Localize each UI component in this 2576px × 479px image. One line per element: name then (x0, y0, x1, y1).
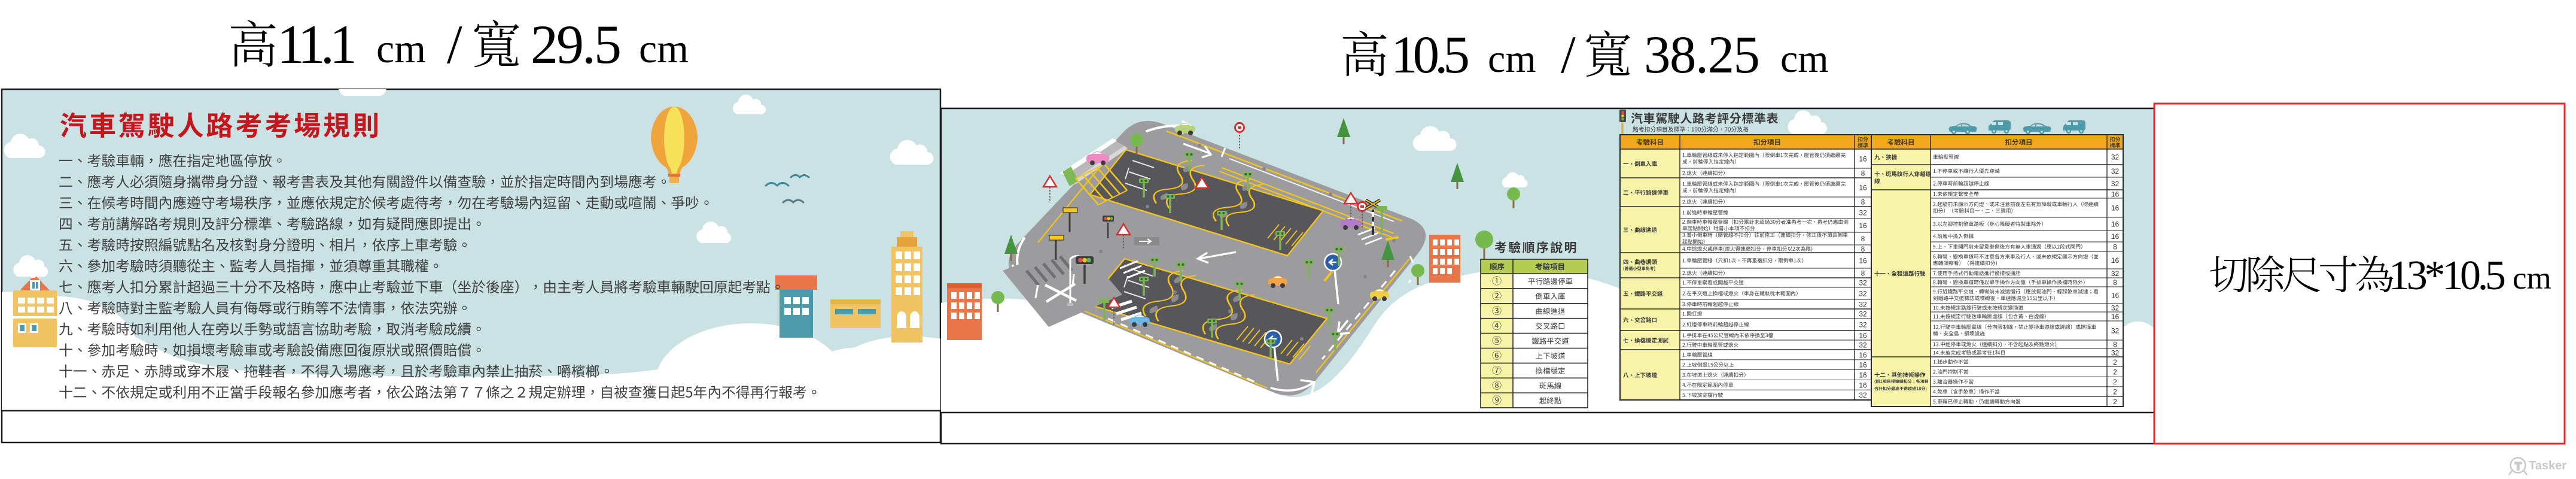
svg-text:38.25: 38.25 (1644, 26, 1760, 84)
svg-text:16: 16 (2111, 313, 2120, 321)
svg-text:16: 16 (2111, 256, 2120, 265)
svg-text:8: 8 (2113, 341, 2117, 349)
svg-text:32: 32 (1859, 290, 1867, 298)
svg-text:8: 8 (1861, 198, 1865, 207)
svg-text:16: 16 (1859, 155, 1867, 163)
svg-text:2: 2 (2113, 388, 2117, 396)
svg-text:16: 16 (1859, 351, 1867, 359)
svg-text:cm: cm (1780, 37, 1829, 81)
svg-text:13*10.5: 13*10.5 (2389, 253, 2506, 299)
svg-text:32: 32 (1859, 301, 1867, 309)
svg-text:32: 32 (1859, 209, 1867, 217)
svg-text:2: 2 (2113, 398, 2117, 406)
svg-text:cm: cm (2513, 261, 2551, 296)
svg-text:16: 16 (1859, 371, 1867, 380)
svg-text:8: 8 (1861, 169, 1865, 178)
svg-text:16: 16 (2111, 232, 2120, 241)
svg-text:32: 32 (2111, 304, 2120, 313)
svg-text:32: 32 (1859, 279, 1867, 287)
svg-text:32: 32 (2111, 167, 2120, 175)
svg-text:8: 8 (1861, 245, 1865, 253)
svg-text:32: 32 (1859, 310, 1867, 319)
svg-text:16: 16 (2111, 292, 2120, 300)
svg-text:16: 16 (1859, 184, 1867, 192)
svg-text:16: 16 (1859, 381, 1867, 389)
svg-text:8: 8 (1861, 269, 1865, 278)
svg-text:2: 2 (2113, 358, 2117, 366)
svg-text:cm: cm (639, 26, 689, 71)
svg-text:10.5: 10.5 (1391, 26, 1470, 84)
svg-text:8: 8 (2113, 243, 2117, 251)
svg-text:16: 16 (1859, 257, 1867, 265)
svg-text:cm: cm (1488, 37, 1536, 81)
svg-text:32: 32 (1859, 341, 1867, 350)
svg-text:16: 16 (2111, 190, 2120, 199)
svg-text:32: 32 (1859, 321, 1867, 329)
svg-text:/: / (447, 14, 462, 75)
svg-text:Tasker: Tasker (2529, 459, 2566, 472)
svg-text:16: 16 (1859, 222, 1867, 230)
svg-text:32: 32 (2111, 153, 2120, 162)
svg-text:32: 32 (2111, 269, 2120, 278)
svg-text:16: 16 (2111, 220, 2120, 229)
svg-text:8: 8 (2113, 278, 2117, 287)
svg-text:16: 16 (1859, 332, 1867, 340)
svg-text:32: 32 (2111, 180, 2120, 188)
svg-text:32: 32 (2111, 327, 2120, 335)
svg-text:29.5: 29.5 (531, 14, 622, 75)
svg-text:/: / (1561, 26, 1576, 84)
svg-text:32: 32 (1859, 391, 1867, 399)
svg-text:32: 32 (2111, 349, 2120, 357)
svg-text:11.1: 11.1 (277, 14, 357, 75)
svg-text:16: 16 (1859, 361, 1867, 369)
svg-text:2: 2 (2113, 378, 2117, 386)
svg-text:16: 16 (2111, 204, 2120, 213)
svg-text:cm: cm (376, 26, 426, 71)
svg-text:8: 8 (1861, 235, 1865, 243)
svg-text:2: 2 (2113, 368, 2117, 376)
